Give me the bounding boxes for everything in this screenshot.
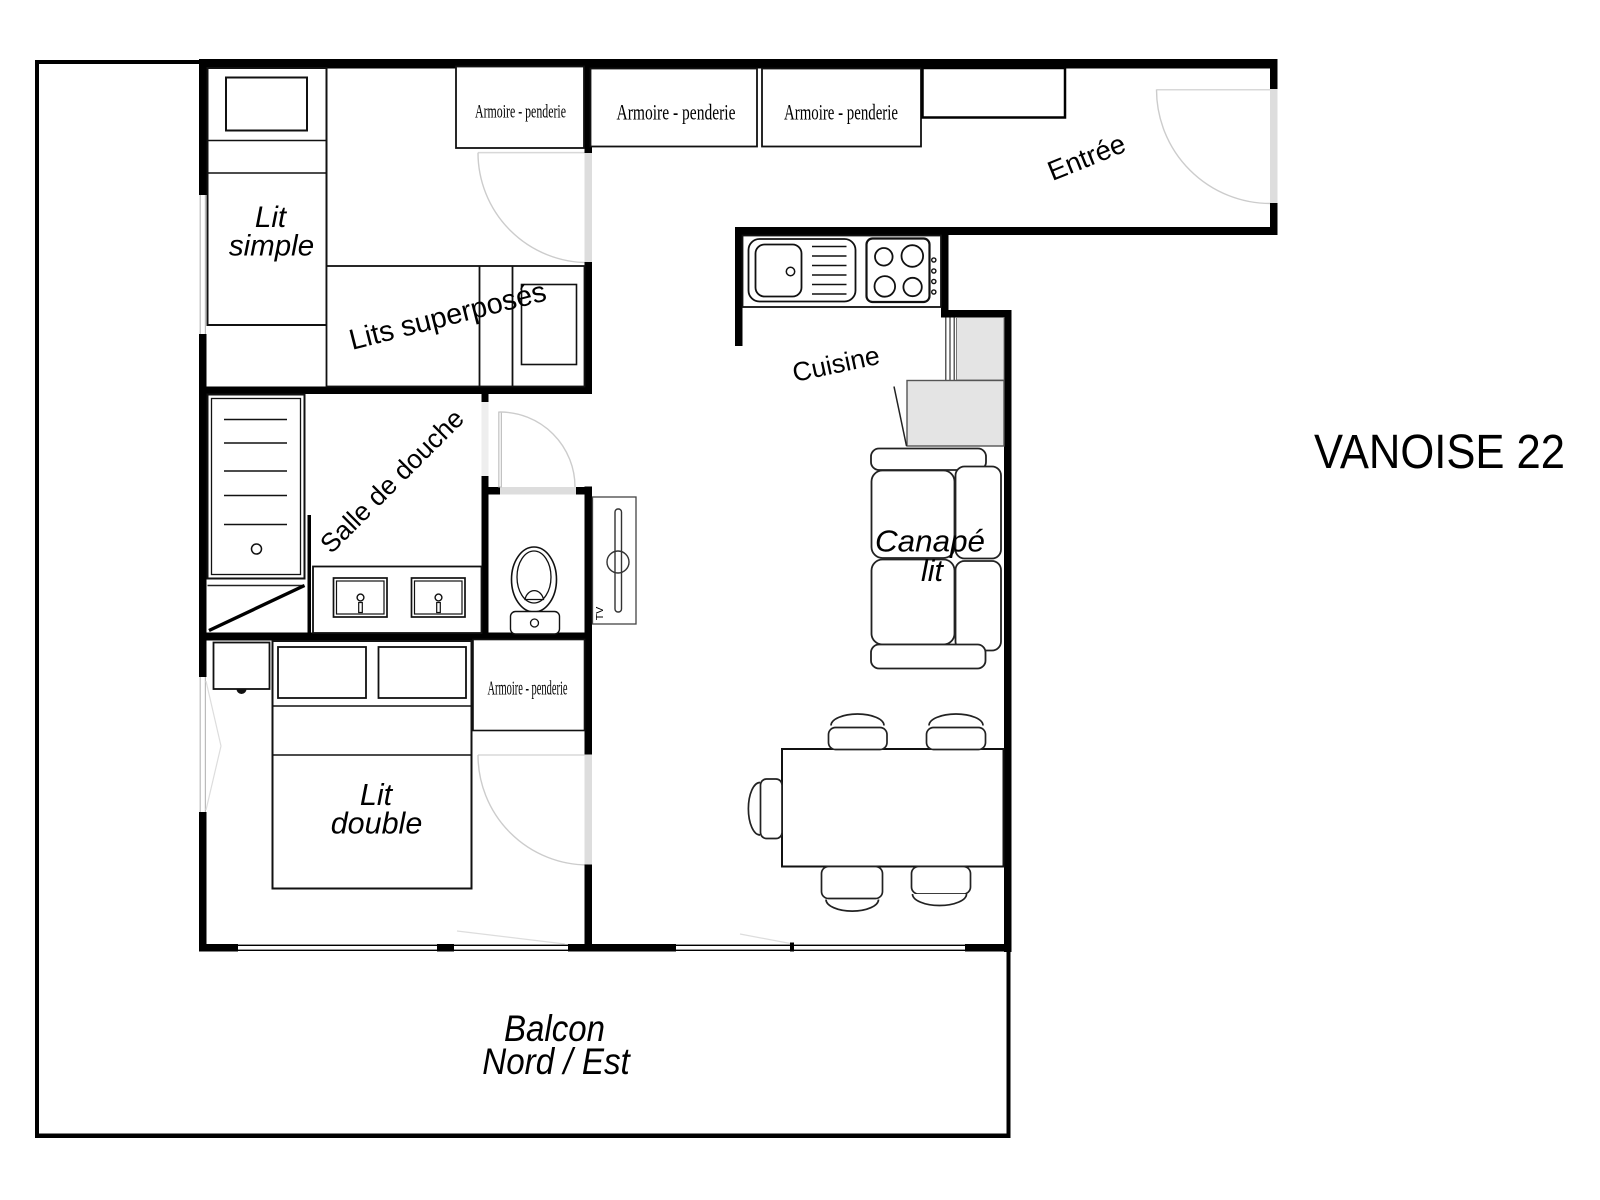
svg-text:Nord / Est: Nord / Est xyxy=(482,1040,631,1082)
svg-text:simple: simple xyxy=(229,230,314,263)
svg-text:Armoire - penderie: Armoire - penderie xyxy=(784,100,898,125)
svg-text:Armoire - penderie: Armoire - penderie xyxy=(488,679,568,700)
svg-text:Armoire - penderie: Armoire - penderie xyxy=(475,102,566,123)
svg-text:lit: lit xyxy=(921,554,945,588)
svg-text:double: double xyxy=(331,807,423,841)
svg-text:Armoire - penderie: Armoire - penderie xyxy=(617,100,736,125)
svg-text:VANOISE 22: VANOISE 22 xyxy=(1314,426,1565,479)
svg-text:TV: TV xyxy=(594,607,606,620)
